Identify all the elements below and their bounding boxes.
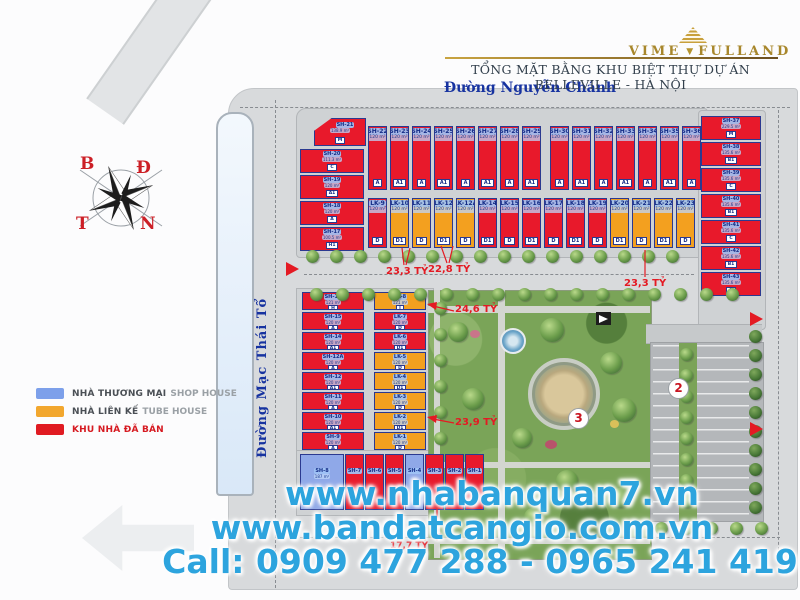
lot-area: 120 m²: [500, 207, 518, 213]
right-lot-column: SH-37229.5 m²MSH-38135.6 m²B1SH-39135.6 …: [701, 116, 761, 296]
compass-south-label: N: [140, 214, 156, 234]
legend-item: KHU NHÀ ĐÃ BÁN: [36, 424, 237, 435]
lot-type: D: [395, 445, 405, 450]
lot-type: D: [395, 365, 405, 370]
lot-id: LK-10: [390, 200, 409, 207]
park-fountain: [500, 328, 526, 354]
lot: SH-35120 m²A1: [660, 126, 679, 190]
lot-type: D: [592, 237, 602, 245]
lot-area: 120 m²: [632, 207, 650, 213]
price-label: 23,3 TỶ: [386, 266, 428, 277]
lot-id: SH-33: [616, 128, 635, 135]
lot-type: A: [328, 325, 337, 330]
lot-area: 138.9 m²: [330, 128, 350, 133]
lot: SH-32120 m²A: [594, 126, 613, 190]
lot-type: D: [680, 237, 690, 245]
lot-id: LK-19: [588, 200, 607, 207]
lot-area: 120 m²: [544, 207, 562, 213]
lot: SH-10120 m²A1: [302, 412, 364, 430]
lot-type: A1: [326, 190, 339, 197]
lot-area: 120 m²: [682, 135, 700, 141]
lot: SH-28120 m²A: [500, 126, 519, 190]
park-tree: [612, 398, 636, 422]
lot-area: 120 m²: [412, 135, 430, 141]
lot: SH-42135.6 m²B1: [701, 246, 761, 270]
lot-type: A1: [575, 179, 588, 187]
lot: SH-14120 m²A1: [302, 332, 364, 350]
lot: LK-12A120 m²D: [456, 198, 475, 248]
lot: SH-24120 m²A: [412, 126, 431, 190]
lot-area: 120 m²: [594, 135, 612, 141]
lot-area: 120 m²: [522, 207, 540, 213]
lot-type: A: [555, 179, 565, 187]
lot-area: 120 m²: [390, 207, 408, 213]
lot: SH-17100.5 m²H1: [300, 227, 364, 251]
lot-id: SH-35: [660, 128, 679, 135]
legend-swatch: [36, 424, 64, 435]
lk-lot-row: LK-9120 m²DLK-10120 m²D1LK-11120 m²DLK-1…: [368, 198, 695, 248]
lot-id: LK-18: [566, 200, 585, 207]
lot: LK-22120 m²D1: [654, 198, 673, 248]
lot-area: 100.5 m²: [322, 235, 342, 240]
building-block: [216, 112, 254, 496]
vime-fulland-logo-icon: [679, 27, 707, 43]
lot: LK-11120 m²D: [412, 198, 431, 248]
lot-area: 120 m²: [324, 209, 340, 214]
lot: LK-21120 m²D: [632, 198, 651, 248]
park-plaza: [528, 358, 600, 430]
lot-type: A: [505, 179, 515, 187]
lot-type: A1: [481, 179, 494, 187]
lot-area: 120 m²: [456, 207, 474, 213]
compass-north-label: B: [80, 154, 94, 174]
watermark: www.nhabanquan7.vn www.bandatcangio.com.…: [100, 477, 800, 579]
watermark-phone: Call: 0909 477 288 - 0965 241 419: [100, 545, 800, 579]
legend-item: NHÀ THƯƠNG MẠI SHOP HOUSE: [36, 388, 237, 399]
lot: LK-23120 m²D: [676, 198, 695, 248]
lot-type: A1: [525, 179, 538, 187]
lot-type: A: [417, 179, 427, 187]
lot-area: 120 m²: [610, 207, 628, 213]
lot-type: D: [460, 237, 470, 245]
lot-type: D1: [569, 237, 583, 245]
lot: SH-19120 m²A1: [300, 175, 364, 199]
lot-type: D: [636, 237, 646, 245]
lot-type: D1: [393, 237, 407, 245]
lot: SH-18120 m²A: [300, 201, 364, 225]
lot-area: 120 m²: [368, 135, 386, 141]
legend-swatch: [36, 406, 64, 417]
lot-id: LK-23: [676, 200, 695, 207]
lot-type: D1: [657, 237, 671, 245]
lot: LK-17120 m²D: [544, 198, 563, 248]
lot-area: 120 m²: [324, 183, 340, 188]
lot-id: LK-12: [434, 200, 453, 207]
lot-type: I: [396, 305, 404, 310]
middle-road-centerline: [304, 274, 694, 275]
legend-label-en: SHOP HOUSE: [170, 389, 237, 399]
lot-area: 120 m²: [660, 135, 678, 141]
lot-type: A1: [327, 385, 340, 390]
parking-zone-badge: 2: [668, 378, 689, 399]
lot-id: SH-29: [522, 128, 541, 135]
lot-type: A: [373, 179, 383, 187]
park-tree: [512, 428, 532, 448]
lot-type: A1: [393, 179, 406, 187]
lot-type: A: [643, 179, 653, 187]
legend-label-vi: NHÀ THƯƠNG MẠI: [72, 389, 166, 399]
lot: SH-34120 m²A: [638, 126, 657, 190]
lot: LK-1120 m²D: [374, 432, 426, 450]
lot-type: A: [328, 405, 337, 410]
lot: SH-12A120 m²A: [302, 352, 364, 370]
lot-id: LK-22: [654, 200, 673, 207]
lot-type: D: [548, 237, 558, 245]
diagonal-road: [86, 0, 215, 125]
lot: SH-9120 m²A: [302, 432, 364, 450]
lot-id: SH-34: [638, 128, 657, 135]
lot-area: 120 m²: [412, 207, 430, 213]
park-tree: [540, 318, 564, 342]
lot: LK-7120 m²D: [374, 312, 426, 330]
compass-east-label: Đ: [136, 158, 151, 178]
lot: LK-4120 m²D1: [374, 372, 426, 390]
lot-type: H: [328, 305, 338, 310]
lot-area: 120 m²: [478, 135, 496, 141]
lot-id: SH-32: [594, 128, 613, 135]
lower-sh-column: SH-16121 m²HSH-15120 m²ASH-14120 m²A1SH-…: [302, 292, 364, 450]
lot-id: SH-36: [682, 128, 701, 135]
lot-area: 120 m²: [522, 135, 540, 141]
lot-area: 135.6 m²: [721, 176, 741, 181]
lot-type: D1: [394, 385, 407, 390]
lot-area: 135.6 m²: [721, 150, 741, 155]
price-label: 22,8 TỶ: [428, 264, 470, 275]
lot-type: D1: [394, 345, 407, 350]
lot-id: LK-21: [632, 200, 651, 207]
lot: LK-9120 m²D: [368, 198, 387, 248]
lot: LK-15120 m²D: [500, 198, 519, 248]
lot-type: A1: [327, 345, 340, 350]
lot: LK-3120 m²D: [374, 392, 426, 410]
parking-access-road: [646, 324, 762, 344]
header-rule: [445, 57, 778, 59]
lot-type: D: [395, 325, 405, 330]
lot: SH-20111.3 m²C: [300, 149, 364, 173]
lot-type: B1: [725, 157, 738, 164]
lot-id: SH-26: [456, 128, 475, 135]
legend-swatch: [36, 388, 64, 399]
lot-type: A1: [437, 179, 450, 187]
lot: SH-37229.5 m²M: [701, 116, 761, 140]
lot: SH-15120 m²A: [302, 312, 364, 330]
lot: LK-2120 m²D1: [374, 412, 426, 430]
lot-id: LK-11: [412, 200, 431, 207]
lot-area: 120 m²: [676, 207, 694, 213]
lot-id: SH-22: [368, 128, 387, 135]
lot: SH-36120 m²A: [682, 126, 701, 190]
lot-type: A: [599, 179, 609, 187]
lot-id: SH-31: [572, 128, 591, 135]
street-trees: [434, 302, 447, 445]
lot-type: D: [395, 405, 405, 410]
lot-id: LK-16: [522, 200, 541, 207]
lot-id: LK-17: [544, 200, 563, 207]
lot-type: A: [327, 216, 336, 223]
lot-type: H1: [326, 242, 339, 249]
lot-type: B1: [725, 209, 738, 216]
lot: LK-20120 m²D1: [610, 198, 629, 248]
lot-type: B1: [725, 261, 738, 268]
lot-area: 135.6 m²: [721, 280, 741, 285]
lot-id: SH-24: [412, 128, 431, 135]
lot-area: 120 m²: [434, 207, 452, 213]
price-label: 23,9 TỶ: [455, 417, 497, 428]
lot-area: 135.6 m²: [721, 202, 741, 207]
brand-diamond-icon: ▼: [686, 47, 693, 57]
site-plan-page: Đường Nguyễn Chánh Đường Mạc Thái Tổ VIM…: [0, 0, 800, 600]
lot-id: LK-12A: [456, 200, 475, 207]
lot-area: 120 m²: [654, 207, 672, 213]
lot: SH-29120 m²A1: [522, 126, 541, 190]
legend-label-en: TUBE HOUSE: [142, 407, 207, 417]
lot-id: SH-28: [500, 128, 519, 135]
lot: LK-12120 m²D1: [434, 198, 453, 248]
lot-area: 120 m²: [566, 207, 584, 213]
lot: LK-19120 m²D: [588, 198, 607, 248]
watermark-url-2: www.bandatcangio.com.vn: [82, 511, 800, 545]
top-lot-row-b: SH-30120 m²ASH-31120 m²A1SH-32120 m²ASH-…: [550, 126, 701, 190]
lot: LK-16120 m²D1: [522, 198, 541, 248]
lot: SH-30120 m²A: [550, 126, 569, 190]
lot: LK-6120 m²D1: [374, 332, 426, 350]
lot-area: 120 m²: [478, 207, 496, 213]
lower-lk-column: LK-8121 m²ILK-7120 m²DLK-6120 m²D1LK-512…: [374, 292, 426, 450]
lot: SH-26120 m²A: [456, 126, 475, 190]
lot-id: LK-14: [478, 200, 497, 207]
lot: SH-41135.6 m²C: [701, 220, 761, 244]
lot-area: 120 m²: [638, 135, 656, 141]
lot-type: M: [335, 137, 345, 144]
lot-area: 111.3 m²: [322, 157, 342, 162]
compass-rose: B Đ T N: [64, 148, 174, 244]
street-trees: [310, 288, 739, 301]
lot: SH-22120 m²A: [368, 126, 387, 190]
lot: SH-31120 m²A1: [572, 126, 591, 190]
lot-type: D: [504, 237, 514, 245]
lot-type: A: [461, 179, 471, 187]
page-title: TỔNG MẶT BẰNG KHU BIỆT THỰ DỰ ÁN BELLEVI…: [438, 62, 783, 92]
lot-id: SH-25: [434, 128, 453, 135]
watermark-url-1: www.nhabanquan7.vn: [112, 477, 800, 511]
lot-id: SH-30: [550, 128, 569, 135]
lot-type: D1: [437, 237, 451, 245]
lot: LK-18120 m²D1: [566, 198, 585, 248]
lot-id: SH-27: [478, 128, 497, 135]
lot: SH-12120 m²A1: [302, 372, 364, 390]
legend-label-vi: NHÀ LIÊN KẾ: [72, 407, 138, 417]
lot-area: 120 m²: [434, 135, 452, 141]
lot-type: A: [328, 365, 337, 370]
lot: SH-25120 m²A1: [434, 126, 453, 190]
lot-type: M: [726, 131, 736, 138]
top-road-centerline: [240, 107, 790, 108]
lot-area: 120 m²: [456, 135, 474, 141]
compass-west-label: T: [76, 214, 89, 234]
street-trees: [306, 250, 679, 263]
lot-area: 135.6 m²: [721, 254, 741, 259]
lot-area: 120 m²: [616, 135, 634, 141]
lot-area: 120 m²: [368, 207, 386, 213]
lot-type: A: [687, 179, 697, 187]
lot-area: 135.6 m²: [721, 228, 741, 233]
park-zone-badge: 3: [568, 408, 589, 429]
lot: SH-27120 m²A1: [478, 126, 497, 190]
lot-area: 229.5 m²: [721, 124, 741, 129]
price-label: 24,6 TỶ: [455, 304, 497, 315]
lot-type: D1: [525, 237, 539, 245]
lot-id: LK-15: [500, 200, 519, 207]
lot: LK-10120 m²D1: [390, 198, 409, 248]
lot-type: A1: [663, 179, 676, 187]
lot-type: A1: [619, 179, 632, 187]
lot-type: D1: [481, 237, 495, 245]
legend: NHÀ THƯƠNG MẠI SHOP HOUSE NHÀ LIÊN KẾ TU…: [36, 388, 237, 435]
price-label: 23,3 TỶ: [624, 278, 666, 289]
lot-type: A: [328, 445, 337, 450]
flower-bed: [470, 330, 480, 338]
flower-bed: [545, 440, 557, 449]
lot-area: 120 m²: [588, 207, 606, 213]
park-gazebo-icon: [596, 312, 611, 325]
lot-id: SH-23: [390, 128, 409, 135]
legend-label-vi: KHU NHÀ ĐÃ BÁN: [72, 425, 164, 435]
park-tree: [600, 352, 622, 374]
lot: SH-33120 m²A1: [616, 126, 635, 190]
lot: SH-39135.6 m²C: [701, 168, 761, 192]
lot: SH-23120 m²A1: [390, 126, 409, 190]
lot-type: A1: [327, 425, 340, 430]
lot: SH-38135.6 m²B1: [701, 142, 761, 166]
lot-id: LK-20: [610, 200, 629, 207]
lot-area: 120 m²: [550, 135, 568, 141]
lot-area: 120 m²: [390, 135, 408, 141]
lot: SH-40135.6 m²B1: [701, 194, 761, 218]
lot-type: D1: [613, 237, 627, 245]
park-tree: [462, 388, 484, 410]
park-tree: [448, 322, 468, 342]
lot-type: C: [726, 235, 735, 242]
top-lot-row-a: SH-22120 m²ASH-23120 m²A1SH-24120 m²ASH-…: [368, 126, 541, 190]
flower-bed: [610, 420, 619, 428]
lot: LK-5120 m²D: [374, 352, 426, 370]
legend-item: NHÀ LIÊN KẾ TUBE HOUSE: [36, 406, 237, 417]
lot-area: 120 m²: [572, 135, 590, 141]
lot: SH-11120 m²A: [302, 392, 364, 410]
lot-area: 120 m²: [500, 135, 518, 141]
lot-type: D: [372, 237, 382, 245]
lot-type: D1: [394, 425, 407, 430]
lot: LK-14120 m²D1: [478, 198, 497, 248]
lot-type: D: [416, 237, 426, 245]
lot-id: LK-9: [369, 200, 386, 207]
lot-type: C: [726, 183, 735, 190]
lot-type: C: [327, 164, 336, 171]
top-left-lot-column: SH-20111.3 m²CSH-19120 m²A1SH-18120 m²AS…: [300, 149, 364, 251]
street-label-mac-thai-to: Đường Mạc Thái Tổ: [255, 258, 270, 458]
